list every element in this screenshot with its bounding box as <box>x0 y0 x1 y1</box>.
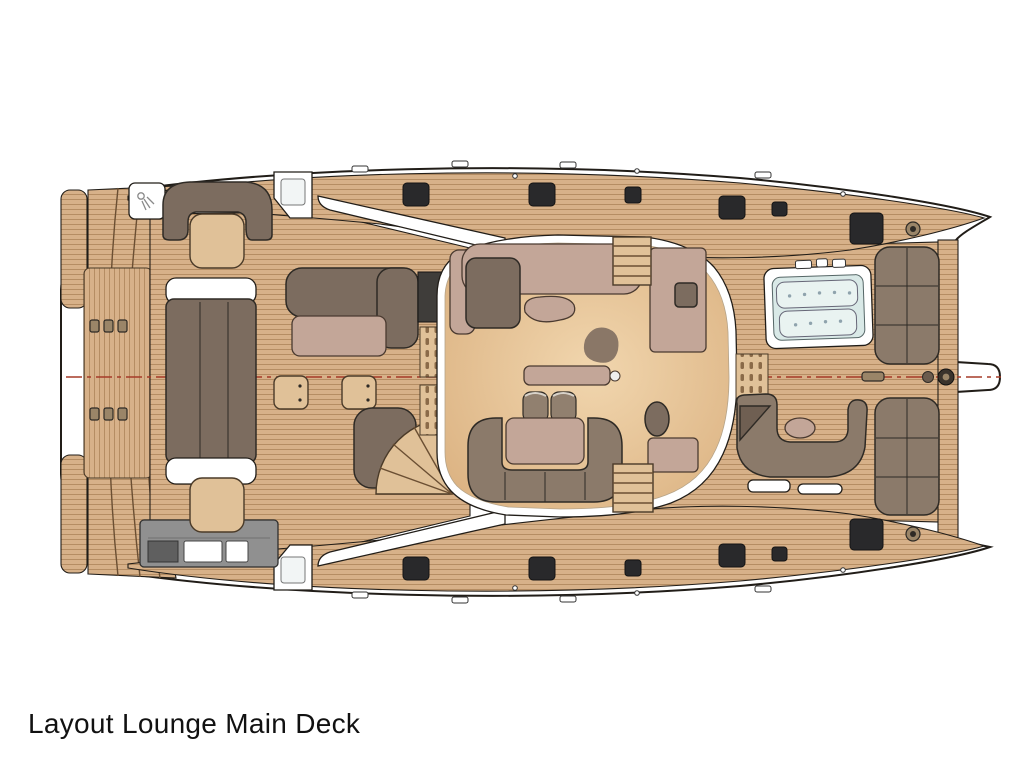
hatch <box>529 183 555 206</box>
outdoor-shower-module <box>129 183 165 219</box>
forward-locker-lid <box>748 480 790 492</box>
deck-plan-figure: Layout Lounge Main Deck <box>0 0 1024 768</box>
plan-title: Layout Lounge Main Deck <box>28 708 360 740</box>
hatch <box>403 183 429 206</box>
grill <box>148 541 178 562</box>
cockpit-table-bottom <box>190 478 244 532</box>
stool <box>610 371 620 381</box>
hatch <box>772 202 787 216</box>
deck-plan-svg <box>0 0 1024 768</box>
cockpit-table-top <box>190 214 244 268</box>
companionway-stairs-bottom <box>613 464 653 512</box>
hatch <box>772 547 787 561</box>
central-swim-platform <box>84 268 152 478</box>
anchor-cleat <box>862 372 884 381</box>
fridge <box>226 541 248 562</box>
hatch <box>719 544 745 567</box>
forward-cushion <box>785 418 815 438</box>
cabinet-window <box>281 179 305 205</box>
hatch <box>529 557 555 580</box>
side-cabinet <box>648 438 698 472</box>
forward-crossbeam-deck <box>938 240 958 545</box>
cabinet-window-2 <box>281 557 305 583</box>
sunpad-bottom <box>875 398 939 515</box>
windlass-drum <box>923 372 934 383</box>
hatch <box>625 187 641 203</box>
saloon-sofa-cushion <box>466 258 520 328</box>
hatch <box>850 213 883 244</box>
companionway-stairs-top <box>613 237 651 285</box>
transom-slab-top <box>61 190 87 308</box>
transverse-bench <box>166 299 256 463</box>
hatch <box>625 560 641 576</box>
hatch <box>719 196 745 219</box>
jacuzzi-seat-top <box>776 280 858 309</box>
sink <box>184 541 222 562</box>
coffee-table <box>525 296 575 321</box>
dining-table <box>506 418 584 464</box>
cockpit-dining-table <box>292 316 386 356</box>
forward-locker-lid-2 <box>798 484 842 494</box>
transom-slab-bottom <box>61 455 87 573</box>
jacuzzi <box>763 257 873 349</box>
saloon <box>437 235 737 517</box>
galley-island <box>524 366 610 385</box>
sunpad-top <box>875 247 939 364</box>
helm-pouf <box>645 402 669 436</box>
hatch <box>850 519 883 550</box>
teak-grate-foredeck <box>736 354 768 398</box>
nav-seat <box>675 283 697 307</box>
hatch <box>403 557 429 580</box>
jacuzzi-seat-bottom <box>779 309 857 338</box>
